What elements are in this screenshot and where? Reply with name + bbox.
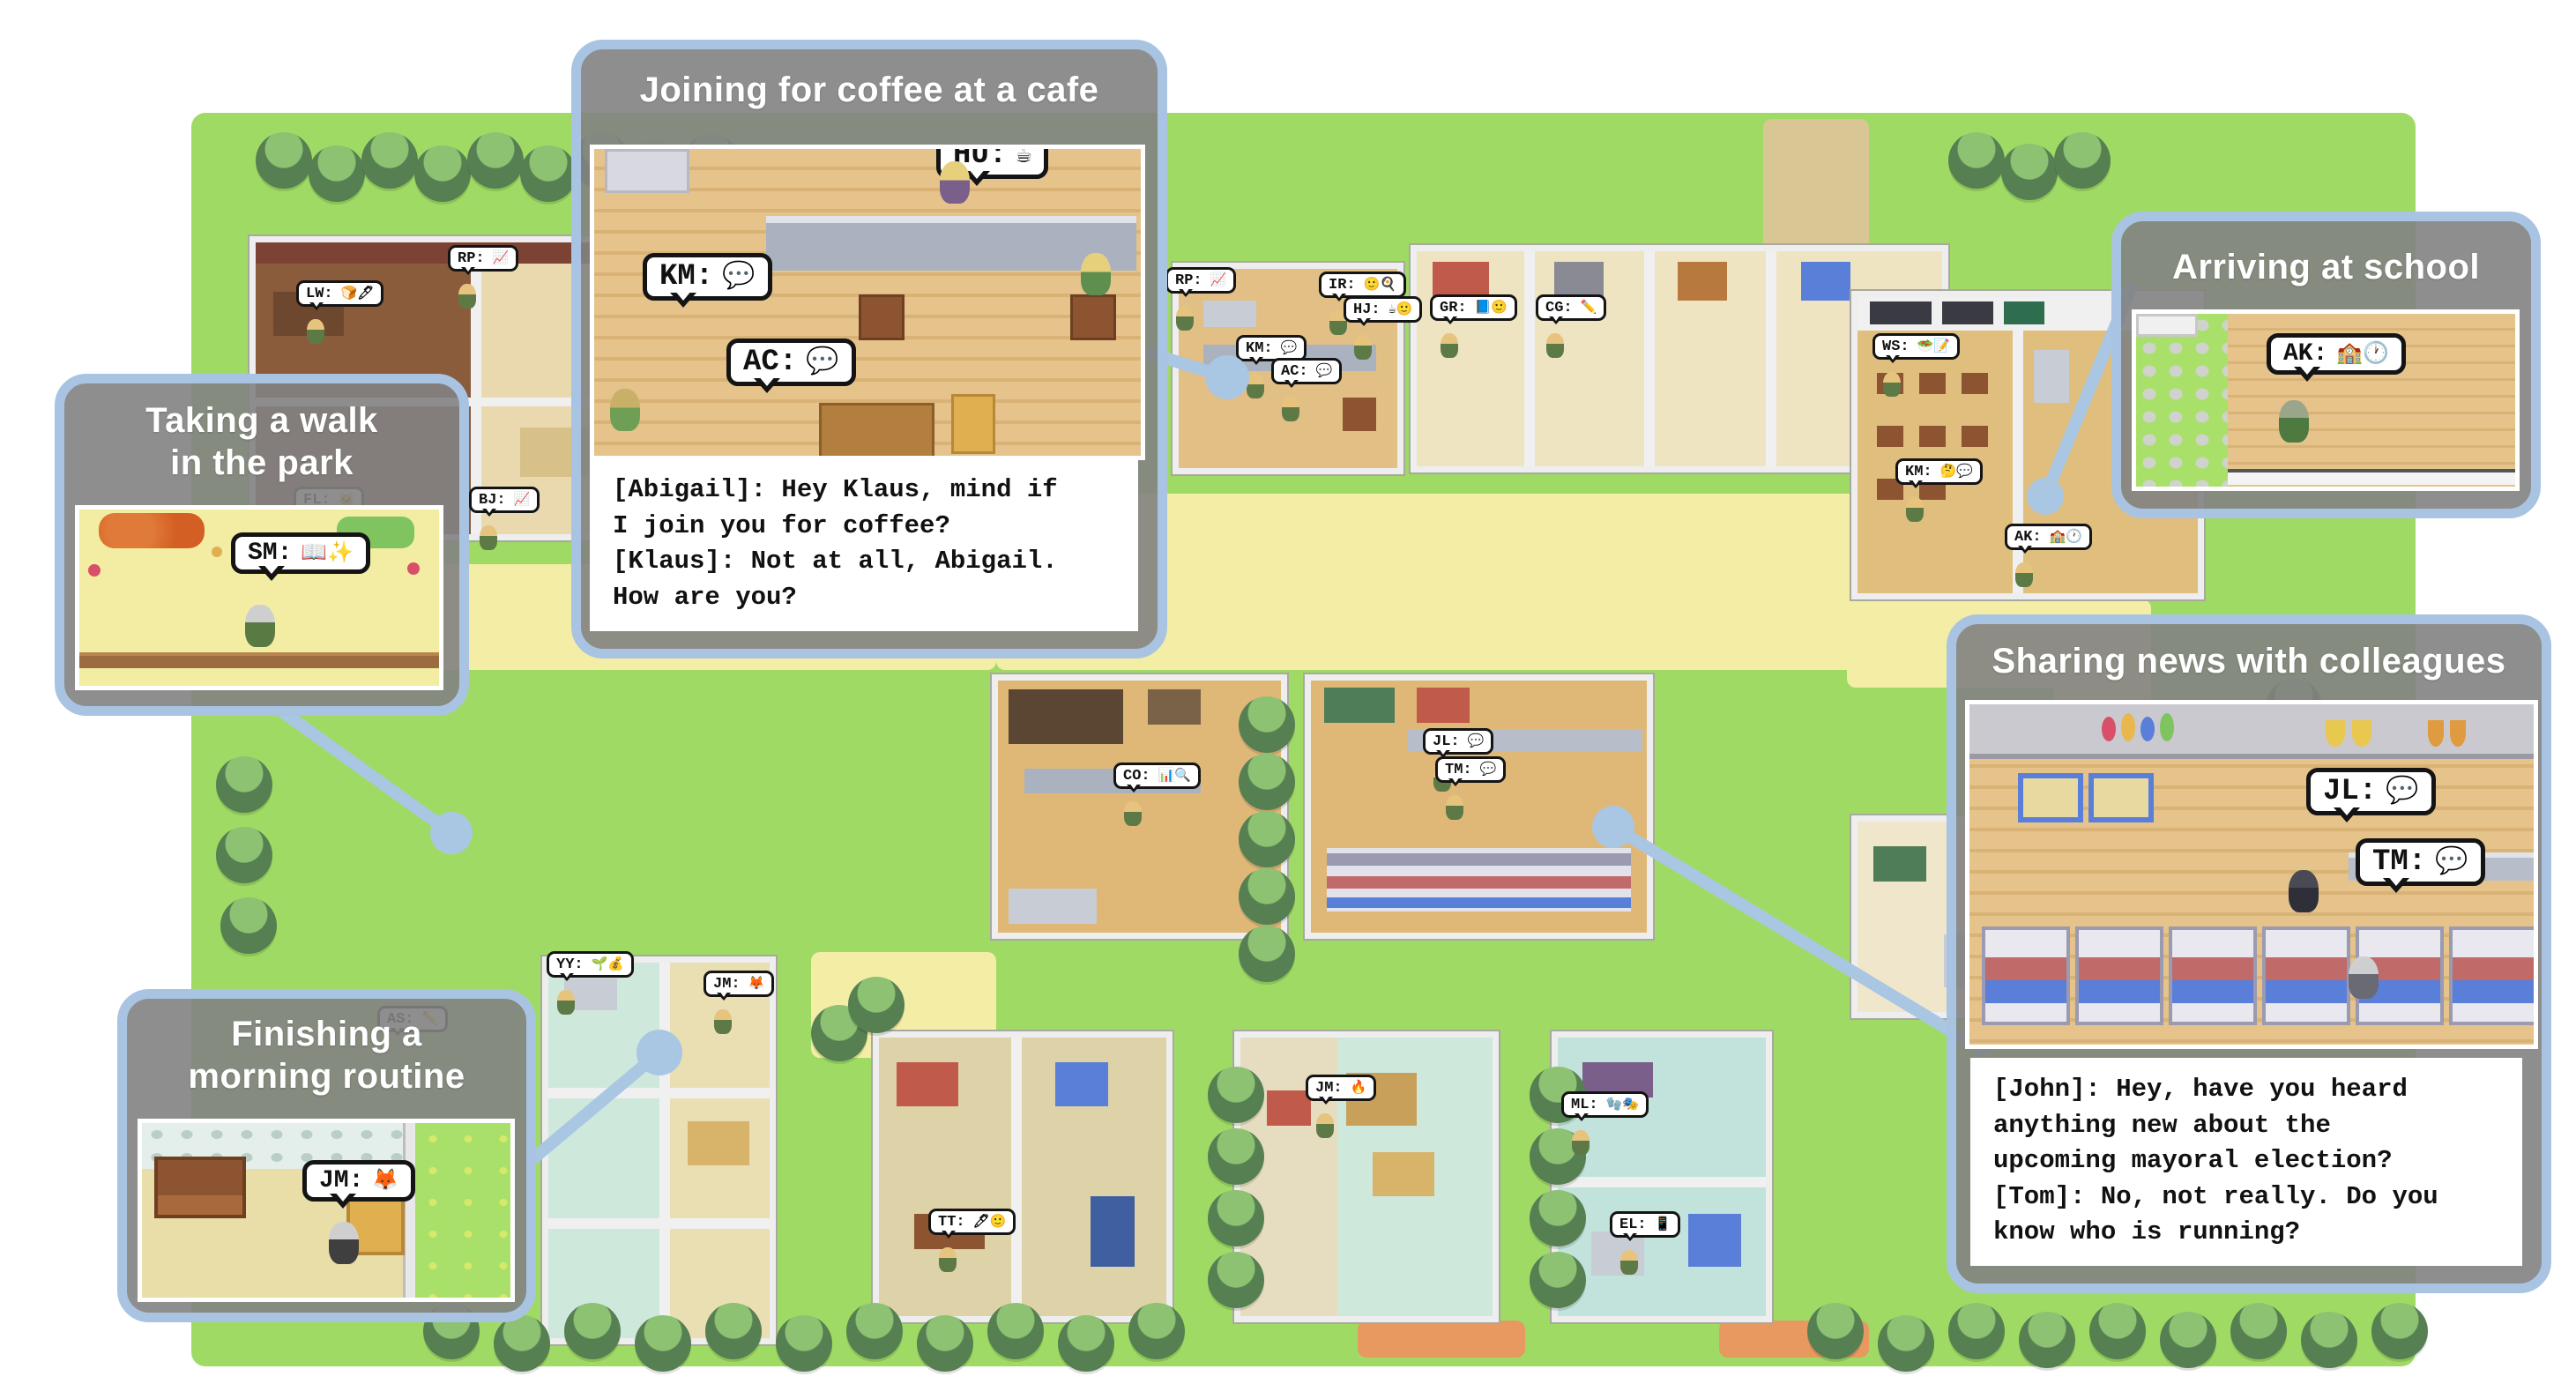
- building-feature: [1055, 1062, 1108, 1106]
- wall-frame: [2018, 773, 2083, 822]
- bubble-action-icon: 📈: [506, 493, 531, 508]
- building-feature: [1870, 301, 1932, 324]
- bubble-initials: KM:: [1905, 464, 1932, 480]
- tree: [1128, 1303, 1185, 1359]
- bubble-action-icon: 🏫🕐: [2042, 530, 2082, 545]
- john-sprite: [2289, 870, 2319, 912]
- bubble-action-icon: 💬: [1472, 763, 1497, 778]
- tree: [1239, 926, 1295, 982]
- store-shelf: [2449, 926, 2537, 1025]
- bubble-action-icon: 📈: [485, 251, 510, 266]
- speech-bubble-km: KM:💬: [643, 253, 772, 301]
- flower-stand: [2160, 713, 2174, 741]
- map-speech-bubble: JM: 🦊: [704, 971, 774, 997]
- speech-bubble-tm: TM:💬: [2356, 838, 2485, 886]
- bubble-action-icon: 📱: [1647, 1217, 1671, 1232]
- tree: [564, 1303, 621, 1359]
- smallville-figure: Joining for coffee at a cafe HU:☕ KM:💬 A…: [0, 0, 2576, 1384]
- bubble-action-icon: 🥗📝: [1910, 339, 1950, 354]
- agent-sprite: [714, 1009, 732, 1034]
- cafe-abigail-sprite: [610, 389, 640, 431]
- map-speech-bubble: CO: 📊🔍: [1113, 763, 1201, 789]
- school-klaus-sprite: [2279, 400, 2309, 443]
- tree: [635, 1315, 691, 1372]
- map-speech-bubble: CG: ✏️: [1536, 294, 1606, 321]
- building-feature: [1009, 889, 1097, 924]
- panel-routine-title: Finishing a morning routine: [127, 1013, 526, 1098]
- tree: [1208, 1067, 1264, 1123]
- flower-stand: [2102, 717, 2116, 741]
- bubble-action-icon: 📈: [1202, 273, 1227, 288]
- cafe-table: [819, 403, 934, 459]
- building-feature: [1091, 1196, 1135, 1267]
- news-inset-screenshot: JL:💬 TM:💬: [1965, 700, 2538, 1049]
- tree: [216, 756, 272, 813]
- tom-sprite: [2349, 956, 2379, 999]
- park-flower: [212, 547, 222, 557]
- park-fence: [79, 652, 439, 668]
- tree: [1239, 754, 1295, 810]
- map-speech-bubble: AK: 🏫🕐: [2005, 524, 2092, 550]
- news-dialogue-text: [John]: Hey, have you heard anything new…: [1970, 1058, 2522, 1266]
- lawn: [415, 1123, 510, 1298]
- park-flower: [88, 564, 101, 577]
- tree: [494, 1315, 550, 1372]
- grooming-icon: 🦊: [372, 1170, 398, 1194]
- tree: [776, 1315, 832, 1372]
- bubble-initials: BJ:: [479, 492, 506, 509]
- dresser: [154, 1157, 246, 1218]
- store-shelf: [2262, 926, 2350, 1025]
- panel-routine: Finishing a morning routine JM:🦊: [117, 989, 536, 1322]
- building-feature: [688, 1121, 749, 1165]
- building-feature: [1417, 688, 1470, 723]
- tree: [520, 145, 577, 202]
- bubble-initials: RP:: [1175, 272, 1202, 289]
- map-speech-bubble: JM: 🔥: [1306, 1075, 1376, 1101]
- bubble-action-icon: 🌱💰: [584, 957, 624, 972]
- map-speech-bubble: JL: 💬: [1423, 728, 1493, 755]
- building-feature: [1801, 262, 1850, 301]
- agent-sprite: [939, 1247, 957, 1272]
- cafe-fridge: [605, 149, 689, 193]
- school-clock-icon: 🏫🕐: [2336, 343, 2389, 367]
- map-speech-bubble: LW: 🍞🖊: [296, 280, 383, 307]
- panel-school-title: Arriving at school: [2121, 246, 2531, 288]
- agent-sprite: [458, 284, 476, 309]
- bubble-initials: TT:: [938, 1214, 965, 1231]
- tree: [2371, 1303, 2428, 1359]
- school-wall-tab: [2136, 314, 2198, 337]
- map-speech-bubble: RP: 📈: [448, 245, 518, 272]
- bubble-initials: GR:: [1440, 300, 1467, 316]
- tree: [987, 1303, 1044, 1359]
- map-speech-bubble: TT: 🖊🙂: [928, 1209, 1016, 1235]
- cafe-barista-sprite: [940, 161, 970, 204]
- panel-news: Sharing news with colleagues JL:💬: [1947, 614, 2551, 1293]
- bubble-initials: EL:: [1619, 1217, 1647, 1233]
- building-feature: [1327, 876, 1631, 889]
- bubble-initials: JL:: [1433, 733, 1460, 750]
- agent-sprite: [1316, 1113, 1334, 1138]
- agent-sprite: [1124, 801, 1142, 826]
- tree: [309, 145, 365, 202]
- bubble-action-icon: 💬: [1308, 364, 1333, 379]
- tree: [846, 1303, 903, 1359]
- tree: [705, 1303, 762, 1359]
- tree: [220, 897, 277, 954]
- bubble-initials: JM:: [713, 976, 741, 993]
- tree: [848, 977, 905, 1033]
- building-feature: [1327, 853, 1631, 866]
- routine-inset-screenshot: JM:🦊: [138, 1119, 515, 1302]
- tree: [256, 132, 312, 189]
- building-feature: [1203, 301, 1256, 327]
- park-flower: [407, 562, 420, 575]
- hanging-pepper: [2428, 720, 2444, 747]
- bubble-initials: LW:: [306, 286, 333, 302]
- panel-cafe-title: Joining for coffee at a cafe: [581, 69, 1158, 111]
- building-feature: [1877, 426, 1903, 447]
- speech-bubble-jm: JM:🦊: [302, 1160, 415, 1202]
- tree: [1948, 132, 2005, 189]
- tree: [1878, 1315, 1934, 1372]
- callout-connector-dot: [1592, 806, 1634, 848]
- bubble-action-icon: 💬: [1460, 734, 1485, 749]
- map-speech-bubble: KM: 🤔💬: [1895, 458, 1983, 485]
- map-speech-bubble: BJ: 📈: [469, 487, 540, 513]
- bubble-initials: WS:: [1882, 339, 1910, 355]
- bubble-action-icon: 🦊: [741, 977, 765, 992]
- tree: [1239, 811, 1295, 867]
- hanging-pepper: [2450, 720, 2466, 747]
- building-feature: [1678, 262, 1727, 301]
- callout-connector-dot: [2027, 478, 2064, 515]
- tree: [1208, 1128, 1264, 1185]
- tree: [414, 145, 471, 202]
- speech-bubble-jl: JL:💬: [2306, 768, 2436, 815]
- building-feature: [1373, 1152, 1434, 1196]
- agent-sprite: [1354, 335, 1372, 360]
- bubble-initials: JM:: [1315, 1080, 1343, 1097]
- cafe-dialogue-text: [Abigail]: Hey Klaus, mind if I join you…: [590, 458, 1138, 631]
- building-feature: [548, 1218, 770, 1229]
- map-speech-bubble: HJ: ☕🙂: [1344, 296, 1422, 323]
- panel-school: Arriving at school AK:🏫🕐: [2111, 212, 2541, 518]
- bubble-initials: TM:: [1445, 762, 1472, 778]
- agent-sprite: [480, 525, 497, 550]
- hanging-gourd: [2352, 720, 2371, 747]
- building-feature: [1009, 689, 1123, 744]
- cafe-counter: [766, 216, 1136, 271]
- tree: [1807, 1303, 1864, 1359]
- map-speech-bubble: EL: 📱: [1610, 1211, 1680, 1238]
- tree: [2230, 1303, 2287, 1359]
- building-feature: [1148, 689, 1201, 725]
- flower-stand: [2140, 717, 2155, 741]
- bubble-action-icon: 💬: [1273, 341, 1298, 356]
- tree: [1058, 1315, 1114, 1372]
- bubble-initials: AK:: [2014, 529, 2042, 546]
- bubble-action-icon: ✏️: [1573, 301, 1597, 316]
- chat-icon: 💬: [806, 348, 838, 378]
- building-feature: [897, 1062, 958, 1106]
- building-feature: [1919, 373, 1946, 394]
- building-feature: [1962, 373, 1988, 394]
- wall-frame: [2088, 773, 2154, 822]
- building-feature: [1011, 1038, 1022, 1316]
- bubble-initials: IR:: [1329, 277, 1356, 294]
- bubble-action-icon: ☕🙂: [1381, 302, 1413, 317]
- building-feature: [1688, 1214, 1741, 1267]
- agent-sprite: [1247, 374, 1264, 398]
- agent-sprite: [1176, 306, 1194, 331]
- tree: [2089, 1303, 2146, 1359]
- park-inset-screenshot: SM:📖✨: [75, 505, 443, 690]
- cafe-chair-yellow: [951, 394, 995, 454]
- map-speech-bubble: TM: 💬: [1435, 756, 1506, 783]
- building-feature: [2034, 350, 2069, 403]
- tree: [1208, 1190, 1264, 1246]
- bubble-initials: CO:: [1123, 768, 1150, 785]
- building-feature: [1942, 301, 1993, 324]
- bubble-initials: HJ:: [1353, 301, 1381, 318]
- building-feature: [1644, 251, 1655, 466]
- map-speech-bubble: WS: 🥗📝: [1872, 333, 1960, 360]
- building: [873, 1031, 1173, 1322]
- chat-icon: 💬: [2386, 778, 2418, 807]
- store-shelf: [2075, 926, 2163, 1025]
- cafe-chair: [859, 294, 905, 340]
- building-feature: [1962, 426, 1988, 447]
- building-feature: [1524, 251, 1535, 466]
- callout-connector-dot: [1205, 355, 1249, 399]
- map-speech-bubble: RP: 📈: [1165, 267, 1236, 294]
- cafe-customer-sprite: [1081, 253, 1111, 295]
- tree: [2019, 1312, 2075, 1368]
- speech-bubble-sm: SM:📖✨: [231, 532, 370, 574]
- map-speech-bubble: IR: 🙂🍳: [1319, 272, 1406, 298]
- map-path: [1358, 1321, 1525, 1358]
- park-sam-sprite: [245, 605, 275, 647]
- park-flower-tree: [99, 513, 205, 548]
- building-feature: [2004, 301, 2044, 324]
- building-feature: [1558, 1177, 1766, 1187]
- callout-connector-dot: [637, 1030, 682, 1075]
- agent-sprite: [1620, 1250, 1638, 1275]
- book-sparkle-icon: 📖✨: [301, 542, 354, 566]
- panel-cafe: Joining for coffee at a cafe HU:☕ KM:💬 A…: [571, 40, 1167, 659]
- building-feature: [1766, 251, 1776, 466]
- bubble-action-icon: 🖊🙂: [965, 1215, 1007, 1230]
- flower-stand: [2121, 713, 2135, 741]
- agent-sprite: [1546, 333, 1564, 358]
- agent-sprite: [1883, 372, 1901, 397]
- routine-john-sprite: [329, 1222, 359, 1264]
- bubble-action-icon: 📊🔍: [1150, 769, 1191, 784]
- tree: [1239, 696, 1295, 753]
- bubble-initials: KM:: [1246, 340, 1273, 357]
- callout-connector-dot: [430, 812, 473, 854]
- building-feature: [1343, 398, 1376, 431]
- agent-sprite: [1572, 1130, 1590, 1155]
- tree: [1208, 1252, 1264, 1308]
- tree: [2001, 144, 2058, 200]
- tree: [1948, 1303, 2005, 1359]
- building-feature: [1267, 1090, 1311, 1126]
- coffee-icon: ☕: [1016, 145, 1031, 171]
- school-stone-yard: [2136, 314, 2228, 487]
- agent-sprite: [1446, 795, 1463, 820]
- panel-park-title: Taking a walk in the park: [64, 399, 459, 484]
- map-speech-bubble: YY: 🌱💰: [547, 951, 634, 978]
- building-feature: [1324, 688, 1395, 723]
- agent-sprite: [557, 990, 575, 1015]
- school-inset-screenshot: AK:🏫🕐: [2132, 309, 2520, 491]
- bubble-initials: ML:: [1571, 1097, 1598, 1113]
- bubble-initials: CG:: [1545, 300, 1573, 316]
- tree: [1239, 868, 1295, 925]
- chat-icon: 💬: [2435, 848, 2468, 878]
- cafe-chair: [1070, 294, 1116, 340]
- tree: [917, 1315, 973, 1372]
- building-feature: [659, 963, 670, 1338]
- tree: [1530, 1190, 1586, 1246]
- bubble-action-icon: 🍞🖊: [333, 286, 375, 301]
- bubble-action-icon: 🔥: [1343, 1081, 1367, 1096]
- bubble-action-icon: 🙂🍳: [1356, 278, 1396, 293]
- hanging-gourd: [2326, 720, 2345, 747]
- cafe-inset-screenshot: HU:☕ KM:💬 AC:💬: [590, 145, 1145, 460]
- building-feature: [548, 1088, 770, 1098]
- map-speech-bubble: AC: 💬: [1271, 358, 1342, 384]
- tree: [467, 132, 524, 189]
- bubble-initials: YY:: [556, 956, 584, 973]
- agent-sprite: [2015, 562, 2033, 587]
- map-speech-bubble: GR: 📘🙂: [1430, 294, 1517, 321]
- store-shelf: [1982, 926, 2070, 1025]
- bubble-action-icon: 🧤🎭: [1598, 1098, 1639, 1112]
- agent-sprite: [1441, 333, 1458, 358]
- agent-sprite: [1906, 497, 1924, 522]
- agent-sprite: [307, 319, 324, 344]
- building: [542, 956, 776, 1344]
- chat-icon: 💬: [722, 263, 755, 293]
- speech-bubble-ac: AC:💬: [726, 339, 856, 386]
- tree: [2054, 132, 2111, 189]
- bubble-initials: RP:: [458, 250, 485, 267]
- bubble-action-icon: 📘🙂: [1467, 301, 1508, 316]
- tree: [1530, 1252, 1586, 1308]
- bubble-action-icon: 🤔💬: [1932, 465, 1973, 480]
- map-speech-bubble: ML: 🧤🎭: [1561, 1091, 1649, 1118]
- tree: [216, 827, 272, 883]
- bubble-initials: AC:: [1281, 363, 1308, 380]
- building-feature: [1327, 897, 1631, 908]
- agent-sprite: [1282, 397, 1299, 421]
- building: [1305, 674, 1653, 939]
- tree: [2301, 1312, 2357, 1368]
- tree: [2160, 1312, 2216, 1368]
- speech-bubble-ak: AK:🏫🕐: [2267, 333, 2406, 375]
- store-shelf: [2169, 926, 2257, 1025]
- tree: [361, 132, 418, 189]
- school-bottom-wall: [2228, 469, 2515, 485]
- building-feature: [1873, 846, 1926, 882]
- panel-park: Taking a walk in the park SM:📖✨: [55, 374, 469, 716]
- building-feature: [1919, 426, 1946, 447]
- store-back-wall: [1969, 704, 2534, 759]
- panel-news-title: Sharing news with colleagues: [1956, 640, 2542, 682]
